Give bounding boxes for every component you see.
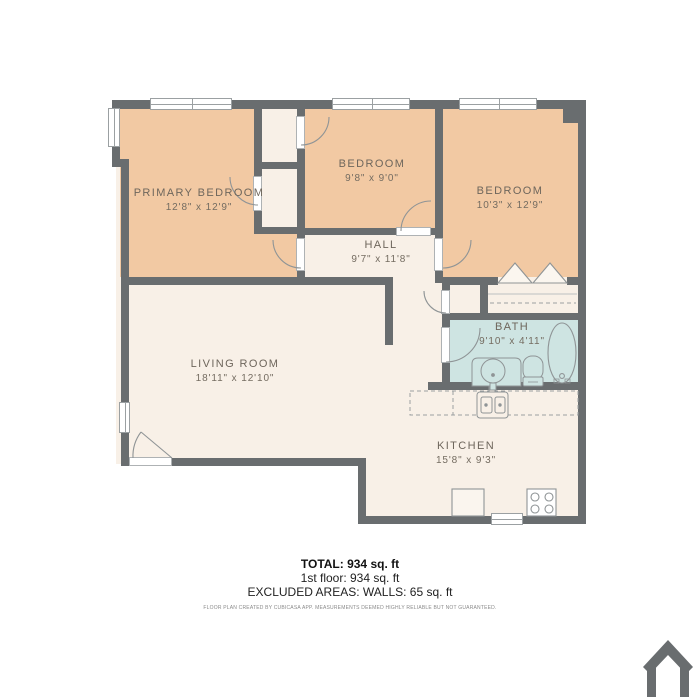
disclaimer-text: FLOOR PLAN CREATED BY CUBICASA APP. MEAS…	[0, 605, 700, 611]
room-label-bath: BATH 9'10" x 4'11"	[479, 321, 545, 347]
room-name: BEDROOM	[477, 185, 544, 197]
door-primary-bedroom	[296, 238, 305, 271]
room-name: PRIMARY BEDROOM	[134, 187, 265, 199]
door-bedroom3	[434, 238, 443, 271]
room-dims: 18'11" x 12'10"	[191, 373, 280, 384]
room-label-kitchen: KITCHEN 15'8" x 9'3"	[436, 440, 496, 466]
wall-bath-top	[442, 313, 586, 320]
wall-bedroom3-south-b	[567, 277, 578, 285]
room-dims: 12'8" x 12'9"	[134, 202, 265, 213]
total-area-text: TOTAL: 934 sq. ft	[0, 557, 700, 571]
room-name: BEDROOM	[339, 158, 406, 170]
room-dims: 9'7" x 11'8"	[351, 254, 410, 265]
door-bath	[441, 327, 450, 363]
door-bedroom2	[396, 227, 431, 236]
wall-bedroomrow-bottom	[121, 277, 393, 285]
room-name: BATH	[479, 321, 545, 333]
wall-livingroom-hall-stub	[385, 277, 393, 345]
room-label-living-room: LIVING ROOM 18'11" x 12'10"	[191, 358, 280, 384]
excluded-areas-text: EXCLUDED AREAS: WALLS: 65 sq. ft	[0, 585, 700, 599]
window-bedroom2-top	[332, 98, 410, 110]
room-dims: 9'8" x 9'0"	[339, 173, 406, 184]
wall-hall-bedroom3-lower	[435, 270, 443, 283]
window-livingroom-left	[119, 402, 130, 433]
window-kitchen-bottom	[491, 513, 523, 525]
wall-closet-column-right-b	[297, 148, 305, 239]
room-label-primary-bedroom: PRIMARY BEDROOM 12'8" x 12'9"	[134, 187, 265, 213]
wall-closet3-left	[480, 285, 488, 316]
first-floor-area-text: 1st floor: 934 sq. ft	[0, 571, 700, 585]
wall-kitchen-left	[358, 458, 366, 524]
floor-plan-page: PRIMARY BEDROOM 12'8" x 12'9" BEDROOM 9'…	[0, 0, 700, 700]
floor-kitchen-area	[358, 420, 580, 520]
window-bedroom3-top	[459, 98, 537, 110]
room-label-hall: HALL 9'7" x 11'8"	[351, 239, 410, 265]
wall-kitchen-bottom	[358, 516, 586, 524]
room-name: LIVING ROOM	[191, 358, 280, 370]
room-name: KITCHEN	[436, 440, 496, 452]
wall-closet-column-right-c	[297, 270, 305, 285]
room-label-bedroom3: BEDROOM 10'3" x 12'9"	[477, 185, 544, 211]
window-primary-bedroom-top	[150, 98, 232, 110]
wall-right	[578, 100, 586, 524]
room-dims: 9'10" x 4'11"	[479, 336, 545, 347]
wall-bedroom2-south-a	[305, 228, 396, 235]
window-primary-bedroom-left	[108, 108, 120, 147]
room-name: HALL	[351, 239, 410, 251]
room-dims: 10'3" x 12'9"	[477, 200, 544, 211]
room-label-bedroom2: BEDROOM 9'8" x 9'0"	[339, 158, 406, 184]
house-icon	[642, 637, 694, 699]
door-closet-top	[296, 116, 305, 149]
door-hall-vestibule	[441, 290, 450, 314]
door-entry	[129, 457, 172, 466]
wall-bedroom2-3-divider	[435, 109, 443, 239]
area-summary: TOTAL: 934 sq. ft 1st floor: 934 sq. ft …	[0, 557, 700, 611]
wall-bath-bottom	[428, 382, 586, 390]
wall-bedroom3-south-a	[443, 277, 498, 285]
room-dims: 15'8" x 9'3"	[436, 455, 496, 466]
